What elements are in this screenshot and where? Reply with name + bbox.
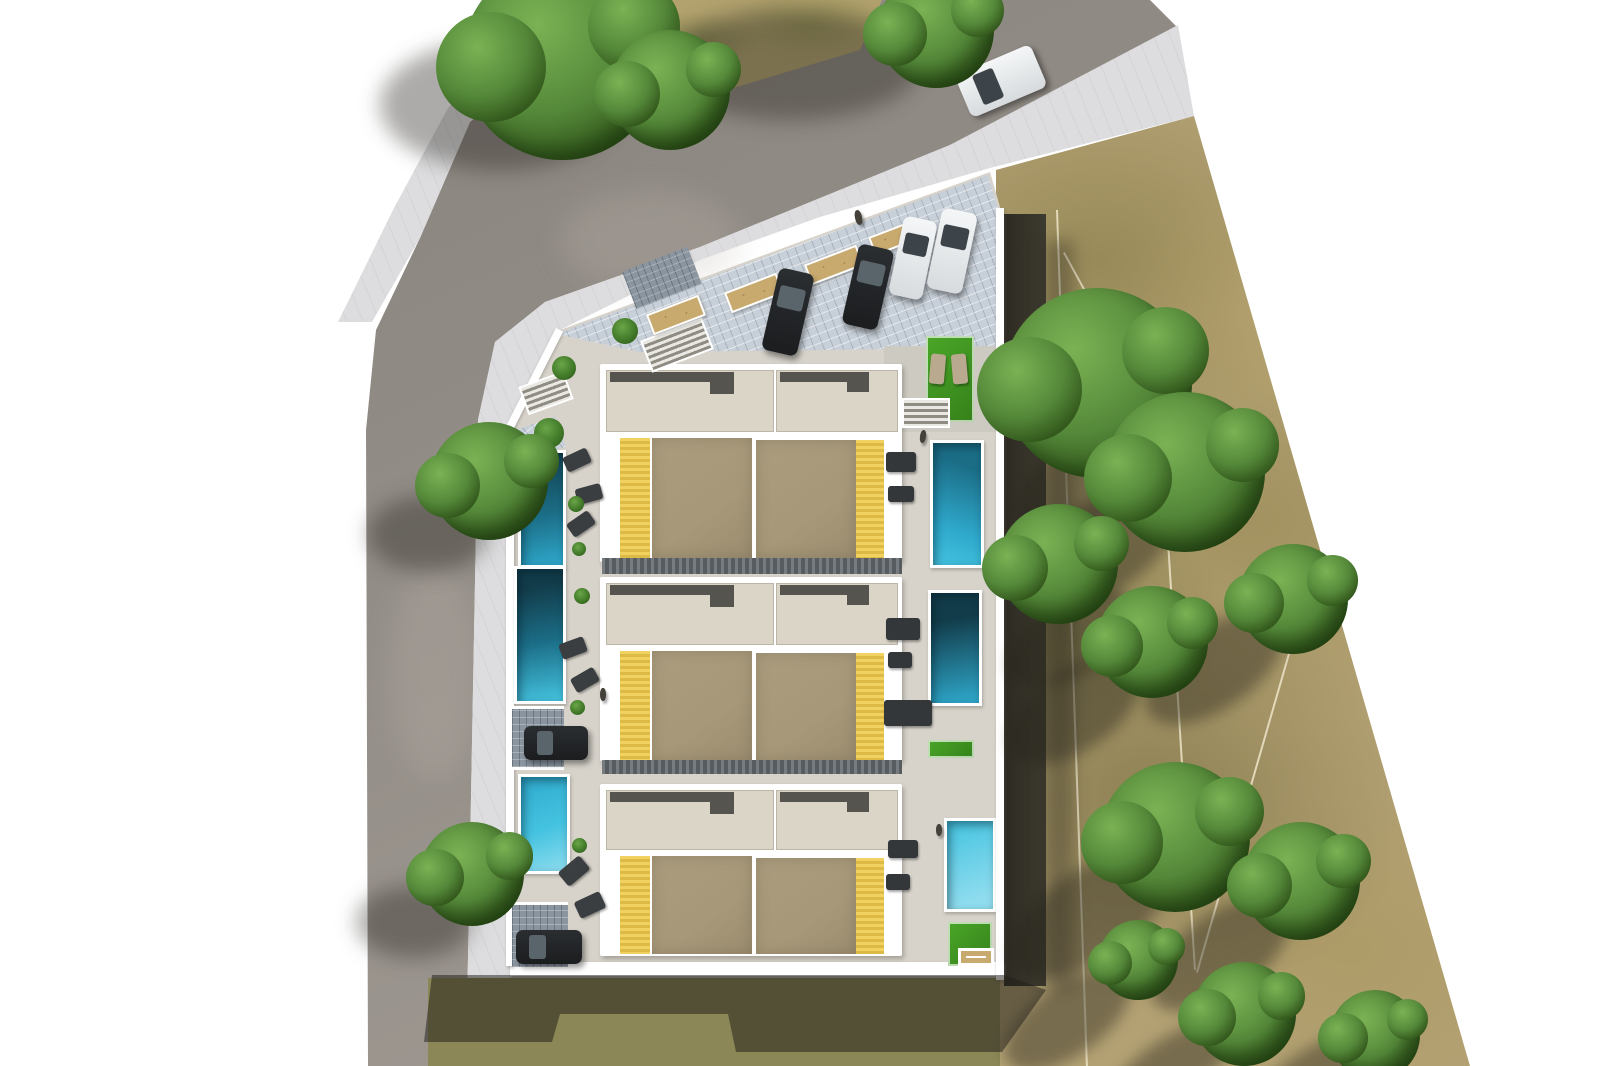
row2-yellow-deck-right (856, 653, 884, 761)
car-windshield (902, 232, 930, 257)
car-windshield (537, 731, 554, 754)
person-on-path (600, 688, 606, 701)
planting-strip (572, 542, 586, 556)
field-tree-9 (1192, 962, 1296, 1066)
roof-stair-notch (610, 372, 714, 382)
row3-roof-terrace-left (606, 790, 774, 850)
sun-lounger (929, 353, 947, 384)
shrub (612, 318, 638, 344)
row1-slatted-band (602, 558, 902, 574)
planting-strip (574, 588, 590, 604)
row1-roof-terrace-left (606, 370, 774, 432)
pool-right-row3 (944, 818, 996, 912)
roof-stair-opening (710, 372, 734, 394)
car-driveway-1 (524, 726, 588, 760)
tree-west-lower (420, 822, 524, 926)
site-plan-render (0, 0, 1600, 1066)
roof-stair-opening (847, 585, 869, 605)
patio-furniture (888, 840, 918, 858)
row2-roof-terrace-left (606, 583, 774, 645)
row1-yellow-deck-left (620, 438, 650, 558)
field-tree-4 (1096, 586, 1208, 698)
planting-strip (568, 496, 584, 512)
car-windshield (529, 935, 546, 958)
patio-furniture (886, 618, 920, 640)
patio-furniture (888, 486, 914, 502)
person-by-pool (936, 824, 942, 836)
planting-strip (572, 838, 587, 853)
roof-stair-notch (610, 792, 714, 802)
row2-slatted-band (602, 760, 902, 774)
row3-courtyard-left (652, 856, 752, 954)
roof-stair-opening (710, 585, 734, 607)
field-tree-2 (1105, 392, 1265, 552)
row2-courtyard-left (652, 651, 752, 761)
stairs-right-units (902, 398, 950, 428)
row3-yellow-deck-right (856, 858, 884, 954)
row3-roof-terrace-right (776, 790, 898, 850)
tree-top-left-small (610, 30, 730, 150)
lawn-patch-mid (928, 740, 974, 758)
row3-yellow-deck-left (620, 856, 650, 954)
road-light-patch (390, 560, 480, 780)
sun-lounger (951, 353, 969, 384)
row1-courtyard-right (756, 440, 856, 558)
car-windshield (940, 224, 970, 250)
rear-perimeter-wall (510, 962, 1004, 976)
car-windshield (856, 260, 886, 287)
field-tree-3 (998, 504, 1118, 624)
field-tree-10 (1330, 990, 1420, 1066)
roof-stair-opening (847, 372, 869, 392)
roof-stair-notch (780, 792, 851, 802)
row1-yellow-deck-right (856, 440, 884, 558)
row2-yellow-deck-left (620, 651, 650, 761)
pool-left-row2 (514, 566, 566, 704)
planting-strip (570, 700, 585, 715)
outdoor-sofa (884, 700, 932, 726)
row1-courtyard-left (652, 438, 752, 558)
white-planter-box (958, 948, 994, 966)
car-windshield (776, 285, 806, 312)
patio-furniture (888, 652, 912, 668)
roof-stair-notch (610, 585, 714, 595)
roof-stair-opening (847, 792, 869, 812)
roof-stair-opening (710, 792, 734, 814)
patio-furniture (886, 874, 910, 890)
row2-courtyard-right (756, 653, 856, 761)
row2-roof-terrace-right (776, 583, 898, 645)
car-driveway-2 (516, 930, 582, 964)
patio-furniture (886, 452, 916, 472)
shrub (552, 356, 576, 380)
field-tree-7 (1242, 822, 1360, 940)
car-windshield (972, 68, 1004, 105)
pool-right-row2 (928, 590, 982, 706)
field-tree-8 (1098, 920, 1178, 1000)
row1-roof-terrace-right (776, 370, 898, 432)
tree-west-sidewalk (430, 422, 548, 540)
roof-stair-notch (780, 585, 851, 595)
field-tree-5 (1238, 544, 1348, 654)
row3-courtyard-right (756, 858, 856, 954)
pool-right-row1 (930, 440, 984, 568)
roof-stair-notch (780, 372, 851, 382)
